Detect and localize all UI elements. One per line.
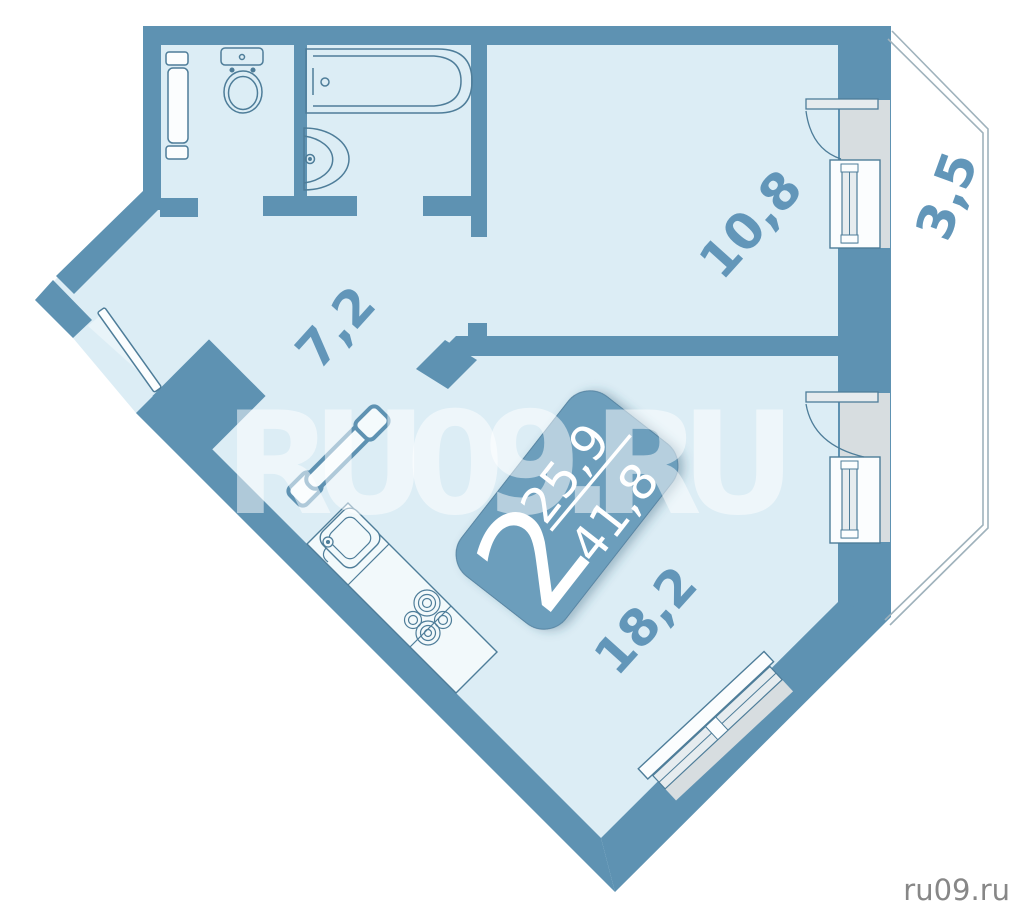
floor-plan: 7,2 10,8 18,2 3,5 2 25,9 41,8 RU09.RU ru… <box>0 0 1024 918</box>
balcony-outline <box>885 31 988 625</box>
window-cap-2a <box>841 461 858 469</box>
window-cap-2b <box>841 530 858 538</box>
wall-room-divider <box>436 336 838 356</box>
floor-plan-page: 7,2 10,8 18,2 3,5 2 25,9 41,8 RU09.RU ru… <box>0 0 1024 918</box>
wall-stub-between-doors <box>263 196 357 216</box>
wall-wc-left <box>143 45 161 210</box>
site-logo: ru09.ru ru09.ru <box>903 873 1011 909</box>
wall-stub-bedroom-door <box>468 323 487 337</box>
wall-bath-right <box>471 45 487 237</box>
wall-top <box>143 26 891 45</box>
wall-wc-bath-separator <box>294 45 307 196</box>
window-cap-1b <box>841 235 858 243</box>
site-logo-text: ru09.ru <box>903 873 1010 907</box>
balcony-door-leaf-1 <box>806 99 878 109</box>
balcony-outline-outer <box>890 31 988 625</box>
window-cap-1a <box>841 164 858 172</box>
wall-stub-wc-door-left <box>160 198 198 217</box>
balcony-outline-inner <box>885 39 983 620</box>
toilet <box>221 48 263 113</box>
balcony-door-leaf-2 <box>806 392 878 402</box>
label-balcony-area: 3,5 <box>905 144 990 247</box>
watermark-text: RU09.RU <box>224 382 796 547</box>
